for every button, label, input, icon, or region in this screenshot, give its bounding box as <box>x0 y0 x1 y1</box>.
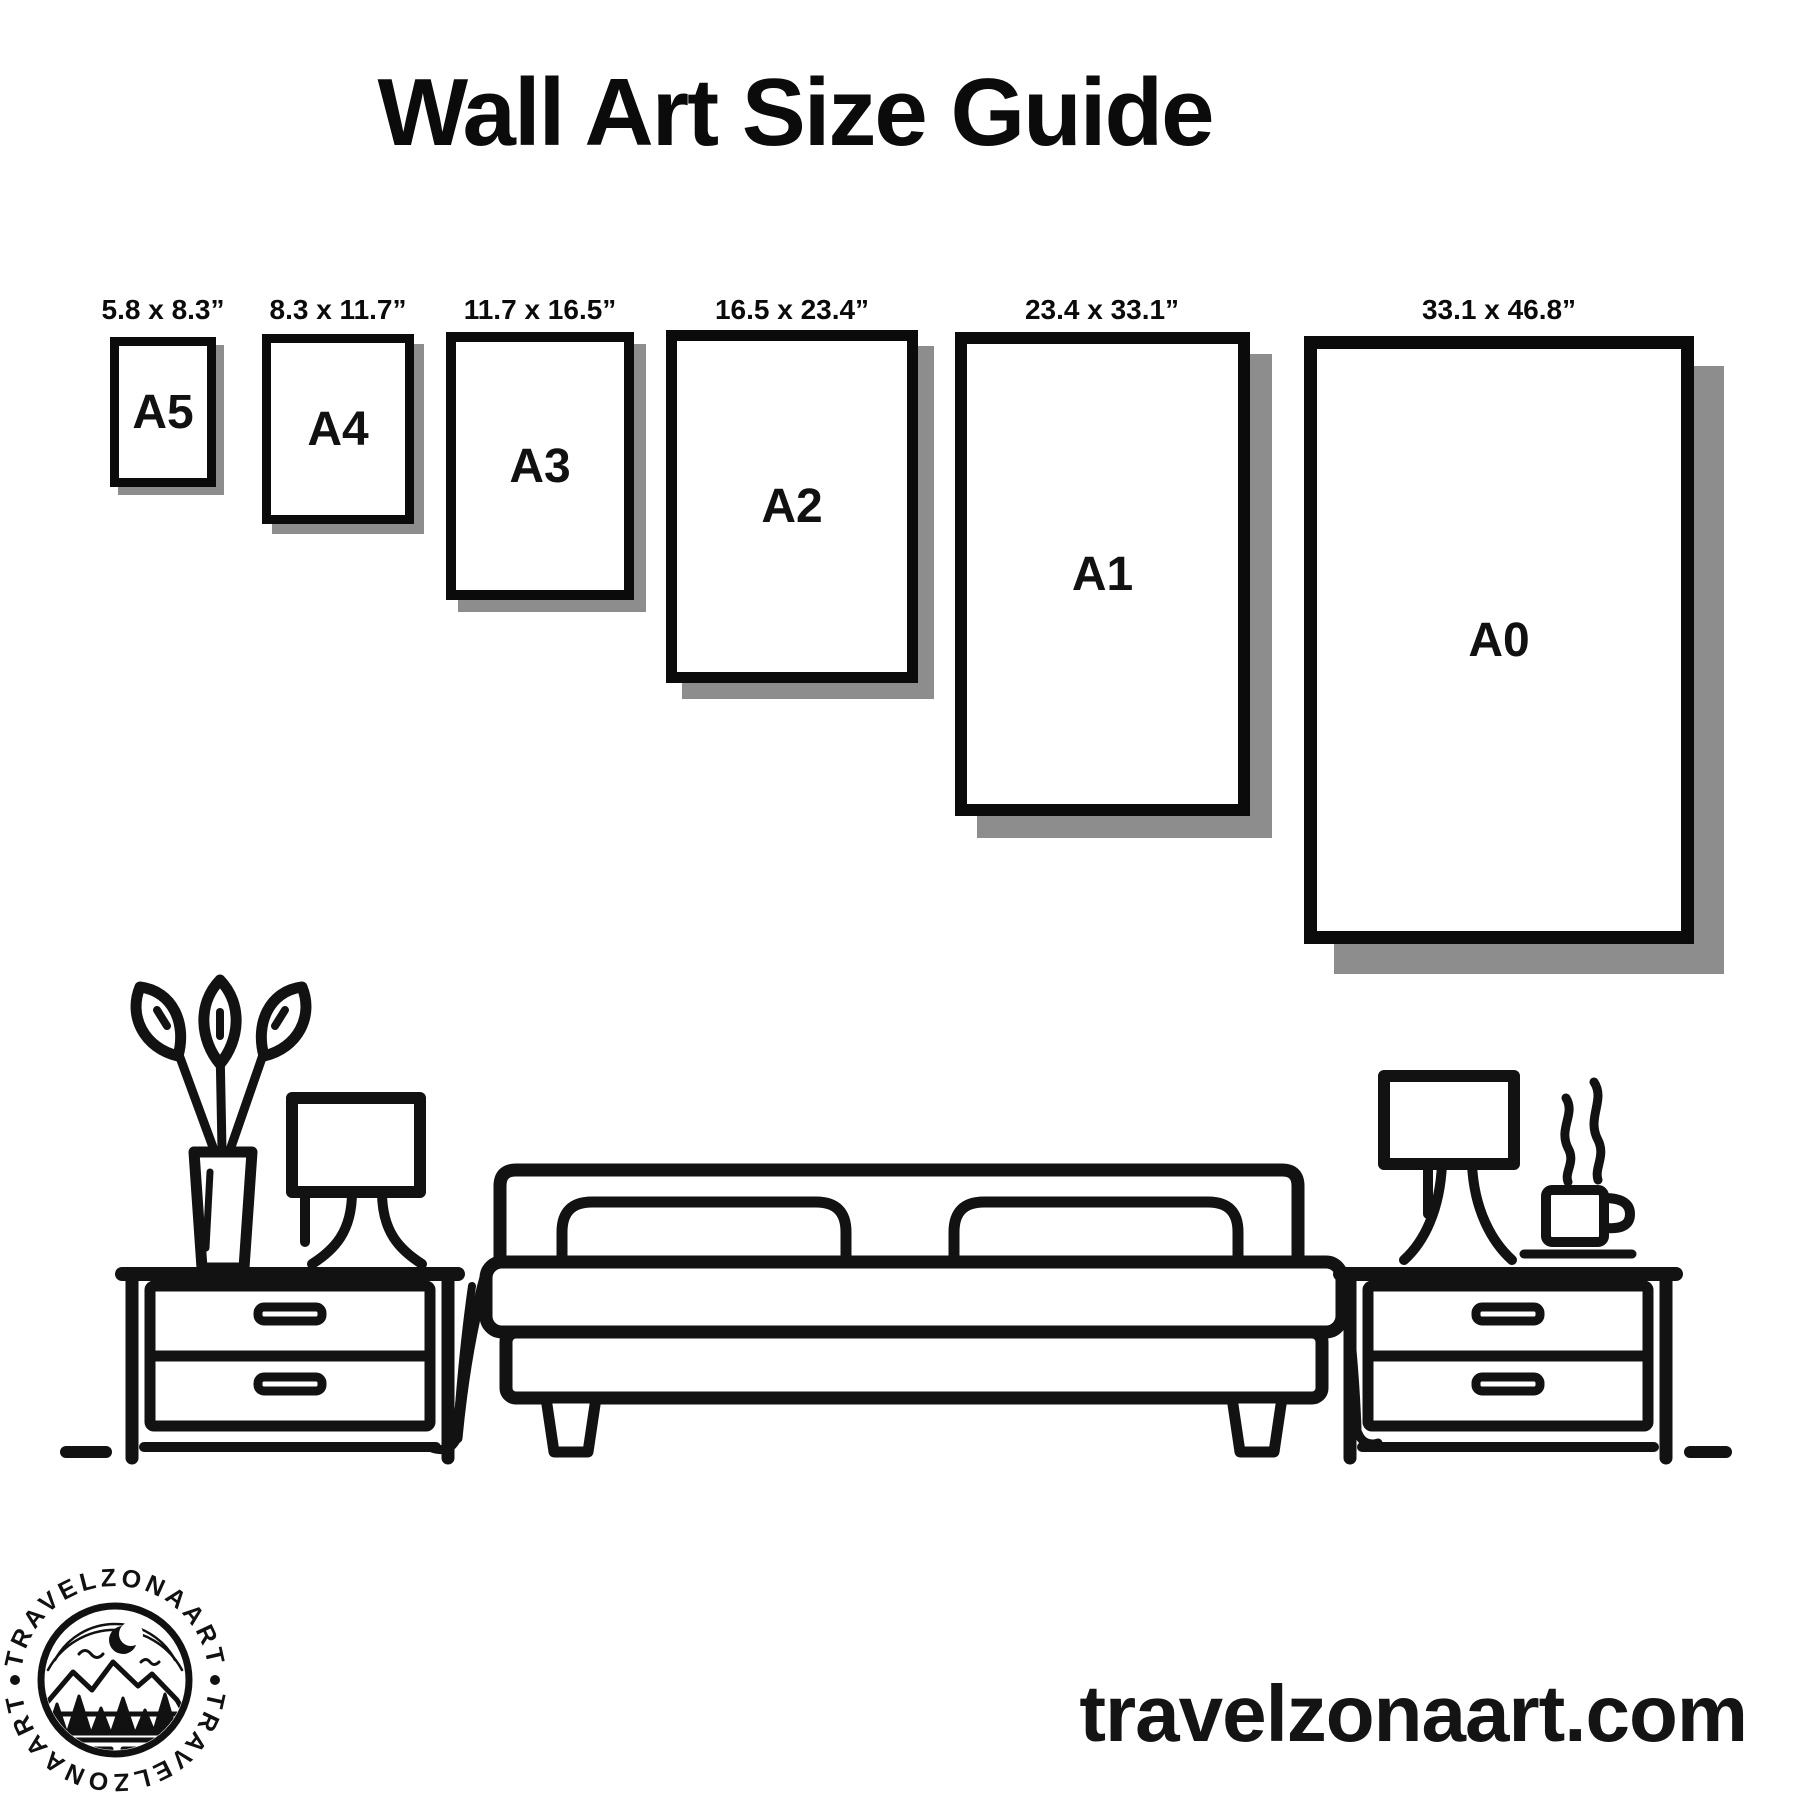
svg-text:TRAVELZONAART: TRAVELZONAART <box>0 1564 230 1670</box>
size-frame-a3: A3 <box>446 332 634 600</box>
moon-mask <box>119 1622 143 1646</box>
table-lamp-right-icon <box>1384 1076 1514 1260</box>
size-letter-a1: A1 <box>1072 547 1133 602</box>
size-dimensions-label-a0: 33.1 x 46.8” <box>1422 294 1576 326</box>
bird-icon-1 <box>79 1651 103 1658</box>
leaf-left <box>136 987 181 1056</box>
vase <box>194 1152 252 1268</box>
coffee-mug-icon <box>1524 1082 1632 1254</box>
drawer-handle-top <box>1476 1307 1540 1321</box>
size-letter-a5: A5 <box>132 385 193 440</box>
lamp-stem-left <box>312 1192 352 1264</box>
size-letter-a3: A3 <box>509 439 570 494</box>
vase-accent <box>206 1172 210 1248</box>
page-title: Wall Art Size Guide <box>378 58 1213 168</box>
website-url: travelzonaart.com <box>1079 1668 1747 1760</box>
plant-vase-icon <box>136 980 306 1268</box>
mug-body <box>1546 1190 1604 1242</box>
size-dimensions-label-a5: 5.8 x 8.3” <box>102 294 225 326</box>
size-dimensions-label-a1: 23.4 x 33.1” <box>1025 294 1179 326</box>
size-letter-a4: A4 <box>307 402 368 457</box>
logo-dot-right <box>210 1675 220 1685</box>
brand-logo: TRAVELZONAART TRAVELZONAART <box>0 1556 235 1796</box>
steam-icon-2 <box>1594 1082 1601 1180</box>
steam-icon <box>1565 1098 1571 1182</box>
bird-icon-2 <box>141 1660 159 1665</box>
bed <box>432 1170 1378 1452</box>
lamp-shade <box>1384 1076 1514 1164</box>
size-dimensions-label-a4: 8.3 x 11.7” <box>269 294 406 326</box>
size-dimensions-label-a3: 11.7 x 16.5” <box>464 294 617 326</box>
mattress <box>486 1262 1342 1332</box>
nightstand-right <box>1340 1274 1676 1458</box>
drawer-handle-bottom <box>1476 1377 1540 1391</box>
drawer-handle-bottom <box>258 1377 322 1391</box>
size-letter-a0: A0 <box>1468 613 1529 668</box>
logo-dot-left <box>10 1675 20 1685</box>
logo-text-top: TRAVELZONAART <box>0 1564 230 1670</box>
plant-stem-right <box>230 1052 264 1150</box>
drawer-handle-top <box>258 1307 322 1321</box>
size-frame-a4: A4 <box>262 334 414 524</box>
wall-art-size-guide-page: Wall Art Size Guide 5.8 x 8.3” 8.3 x 11.… <box>0 0 1800 1800</box>
size-frame-a2: A2 <box>666 330 918 683</box>
pillow-right <box>954 1202 1238 1262</box>
plant-stem-left <box>178 1052 214 1150</box>
size-letter-a2: A2 <box>761 479 822 534</box>
bed-leg-left <box>546 1398 596 1452</box>
lamp-stem-right <box>382 1192 422 1264</box>
lamp-stem-right <box>1472 1164 1512 1260</box>
table-lamp-left-icon <box>292 1098 422 1264</box>
pillow-left <box>562 1202 846 1262</box>
bedroom-illustration <box>0 830 1800 1480</box>
bed-base <box>506 1332 1322 1398</box>
nightstand-left <box>122 1274 458 1458</box>
size-frame-a1: A1 <box>955 332 1250 816</box>
leaf-right <box>261 987 306 1056</box>
size-dimensions-label-a2: 16.5 x 23.4” <box>715 294 869 326</box>
lamp-shade <box>292 1098 420 1192</box>
size-frame-a5: A5 <box>110 337 216 487</box>
bed-leg-right <box>1232 1398 1282 1452</box>
